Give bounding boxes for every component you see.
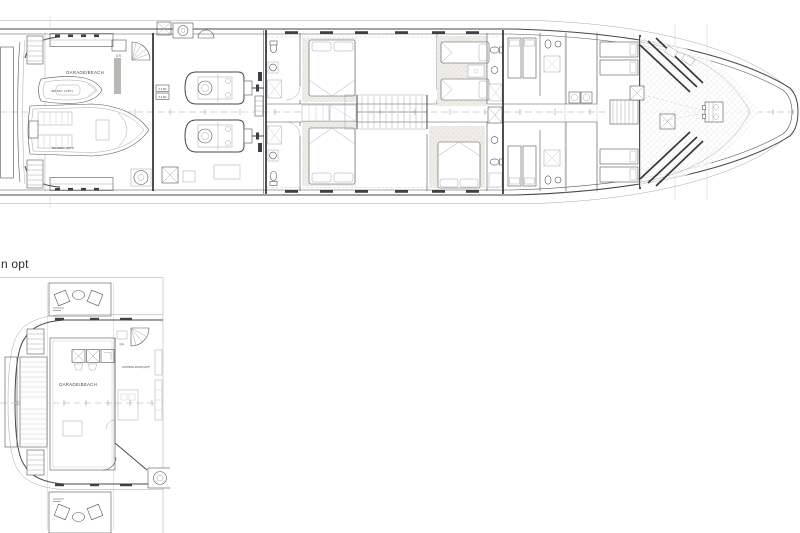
lounger — [87, 504, 103, 520]
aft-ramp — [20, 357, 47, 447]
engine-panel-2: 6.2 DD — [159, 96, 167, 99]
qe-label: Q.E. — [116, 54, 123, 58]
double-bed — [309, 128, 355, 184]
floor-hatch — [63, 421, 82, 436]
terrace-table — [73, 291, 85, 300]
control-room-area: CONTROL ROOM (OPT) Q.E. — [106, 328, 170, 488]
single-bed — [441, 42, 489, 63]
engine-room: 6.2 DD 6.2 DD — [131, 22, 264, 191]
jetski: JETSKY (OPT) — [39, 77, 103, 104]
qe-label: Q.E. — [119, 343, 124, 346]
terrace-port — [49, 283, 111, 316]
garage-beach-label: GARAGE/BEACH — [59, 382, 97, 387]
staircase — [131, 328, 149, 346]
engine-panel-1: 6.2 DD — [159, 88, 167, 91]
windlass — [703, 102, 724, 122]
central-staircase — [345, 95, 427, 129]
guest-cabin-port-fwd — [268, 122, 357, 191]
bathroom — [268, 41, 282, 98]
bathroom — [268, 126, 282, 186]
stern-platform — [5, 329, 47, 475]
laundry-machines — [569, 92, 592, 103]
single-bed — [441, 79, 489, 100]
engine-starboard — [185, 120, 264, 152]
double-bed — [438, 142, 480, 188]
tender-label: TENDER (OPT) — [51, 146, 74, 150]
garage-staircase — [132, 42, 150, 60]
electrical-panel — [112, 40, 126, 51]
engine-port — [185, 72, 264, 104]
lounger — [54, 290, 70, 306]
bow-compartment — [630, 35, 758, 189]
guest-cabin-twin — [437, 33, 489, 106]
terrace-starboard — [49, 492, 111, 533]
electrical-panel — [117, 331, 127, 339]
lounger — [87, 290, 103, 306]
double-bed — [309, 40, 355, 96]
jetski-label: JETSKY (OPT) — [51, 89, 73, 93]
aft-pump-equipment — [131, 165, 240, 186]
stair-enclosure-wall — [114, 58, 121, 94]
deck-hatches — [72, 350, 114, 363]
garage-beach-label: GARAGE/BEACH — [66, 70, 104, 75]
control-room-label: CONTROL ROOM (OPT) — [122, 366, 150, 369]
swim-platform — [1, 47, 14, 178]
capstan — [148, 468, 170, 488]
beach-club-option-plan: GARAGE/BEACH CONTROL ROOM (OPT) Q.E. — [0, 262, 170, 533]
guest-cabin-port-aft — [268, 33, 357, 121]
garage-beach: GARAGE/BEACH — [50, 338, 116, 470]
crew-staircase — [610, 100, 638, 124]
lounger — [54, 504, 70, 520]
lower-deck-plan: GARAGE/BEACH JETSKY (OPT) TENDER (OPT) — [0, 0, 800, 240]
terrace-table — [73, 513, 85, 522]
guest-cabin-stbd-double — [427, 122, 485, 191]
door-swing — [103, 457, 116, 470]
